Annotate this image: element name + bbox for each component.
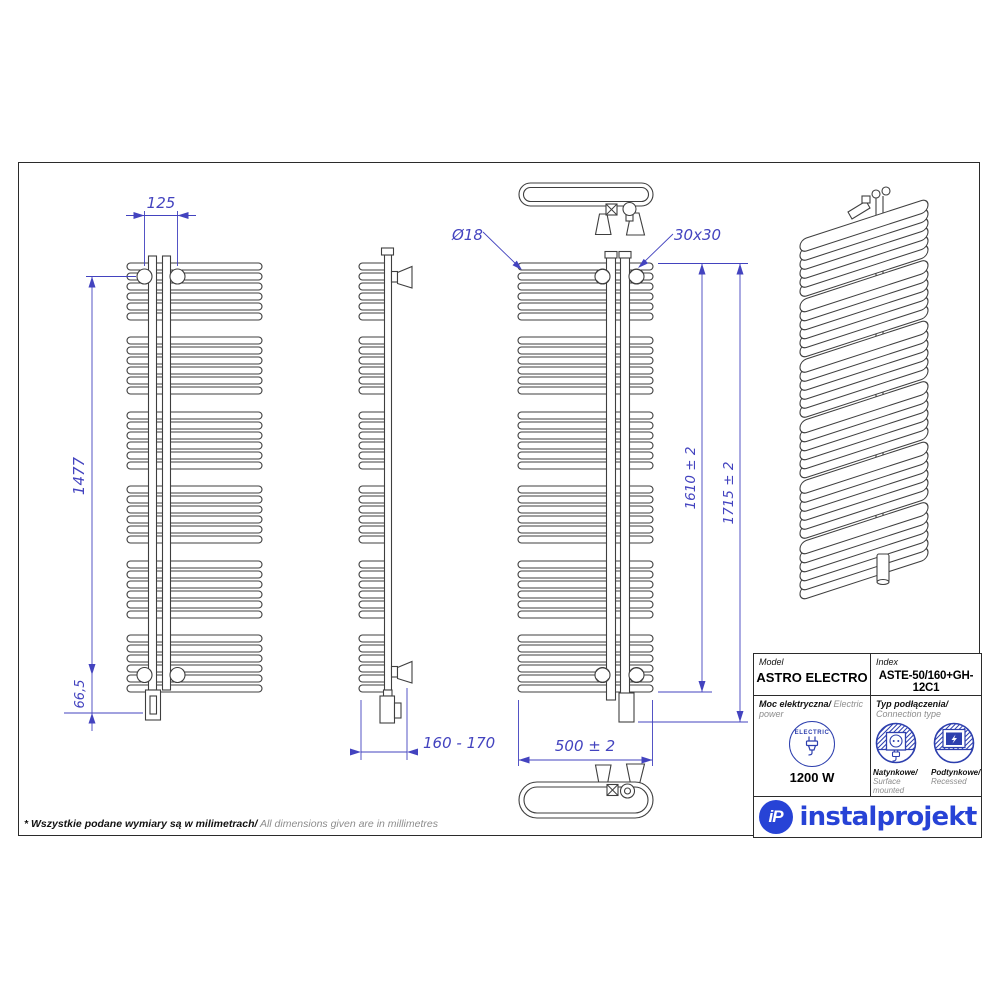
instalprojekt-logo-icon: iP bbox=[759, 800, 793, 834]
index-cell: Index ASTE-50/160+GH-12C1 bbox=[871, 654, 981, 695]
top-plan-view bbox=[519, 183, 653, 235]
model-label: Model bbox=[754, 654, 870, 667]
model-value: ASTRO ELECTRO bbox=[754, 670, 870, 685]
collector-square-tube bbox=[621, 257, 630, 700]
dim-text-30x30: 30x30 bbox=[674, 226, 721, 244]
wall-bracket-top bbox=[398, 267, 413, 289]
surface-mounted-icon bbox=[873, 720, 919, 766]
mounting-point bbox=[170, 269, 185, 284]
mounting-point bbox=[170, 668, 185, 683]
technical-drawing: 125 1477 66,5 bbox=[0, 0, 1000, 1000]
collector-profile-side bbox=[385, 255, 392, 690]
mounting-point bbox=[137, 269, 152, 284]
units-note: * Wszystkie podane wymiary są w milimetr… bbox=[24, 818, 438, 830]
dim-text-66-5: 66,5 bbox=[73, 680, 88, 709]
heating-element bbox=[146, 690, 161, 720]
model-cell: Model ASTRO ELECTRO bbox=[754, 654, 871, 695]
index-label: Index bbox=[871, 654, 981, 667]
dim-text-500: 500 ± 2 bbox=[555, 737, 615, 755]
fasteners bbox=[595, 269, 644, 683]
recessed-option: Podtynkowe/Recessed bbox=[929, 720, 981, 795]
heating-element-main bbox=[619, 693, 634, 722]
collector-tube bbox=[149, 256, 157, 690]
wall-bracket-bottom bbox=[398, 662, 413, 684]
dim-tube-diameter: Ø18 bbox=[451, 226, 522, 270]
index-value: ASTE-50/160+GH-12C1 bbox=[871, 670, 981, 694]
dim-text-160-170: 160 - 170 bbox=[423, 734, 495, 752]
dim-160-170: 160 - 170 bbox=[350, 688, 495, 760]
front-view bbox=[127, 256, 262, 720]
dim-66-5: 66,5 bbox=[64, 675, 143, 731]
surface-mounted-option: Natynkowe/Surface mounted bbox=[871, 720, 923, 795]
main-front-view bbox=[518, 183, 653, 818]
power-label: Moc elektryczna/ Electric power bbox=[754, 696, 870, 719]
mounting-point bbox=[137, 668, 152, 683]
dim-collector-profile: 30x30 bbox=[638, 226, 721, 268]
spec-table: Model ASTRO ELECTRO Index ASTE-50/160+GH… bbox=[753, 653, 982, 838]
bottom-plan-view bbox=[519, 764, 653, 818]
dim-text-125: 125 bbox=[147, 194, 176, 212]
recessed-icon bbox=[931, 720, 977, 766]
drawing-sheet: 125 1477 66,5 bbox=[0, 0, 1000, 1000]
connection-label: Typ podłączenia/Connection type bbox=[871, 696, 981, 719]
dim-1477: 1477 bbox=[70, 277, 136, 676]
dim-text-1477: 1477 bbox=[70, 456, 88, 495]
dim-text-1610: 1610 ± 2 bbox=[683, 447, 699, 510]
dim-125: 125 bbox=[126, 194, 196, 266]
heating-element-side bbox=[380, 696, 395, 723]
collector-tube bbox=[163, 256, 171, 690]
electric-power-cell: Moc elektryczna/ Electric power ELECTRIC bbox=[754, 696, 871, 796]
electric-plug-icon bbox=[803, 736, 821, 756]
instalprojekt-logo-text: instalprojekt bbox=[800, 802, 977, 832]
electric-badge: ELECTRIC bbox=[789, 721, 835, 767]
radiator-3d-view bbox=[800, 187, 928, 601]
power-value: 1200 W bbox=[790, 770, 835, 785]
connection-type-cell: Typ podłączenia/Connection type bbox=[871, 696, 981, 796]
side-view bbox=[359, 248, 412, 723]
logo-row: iP instalprojekt bbox=[754, 797, 981, 837]
dim-text-o18: Ø18 bbox=[451, 226, 483, 244]
dim-text-1715: 1715 ± 2 bbox=[721, 462, 737, 525]
heating-element-3d bbox=[877, 554, 889, 582]
collector-square-tube bbox=[607, 257, 616, 700]
